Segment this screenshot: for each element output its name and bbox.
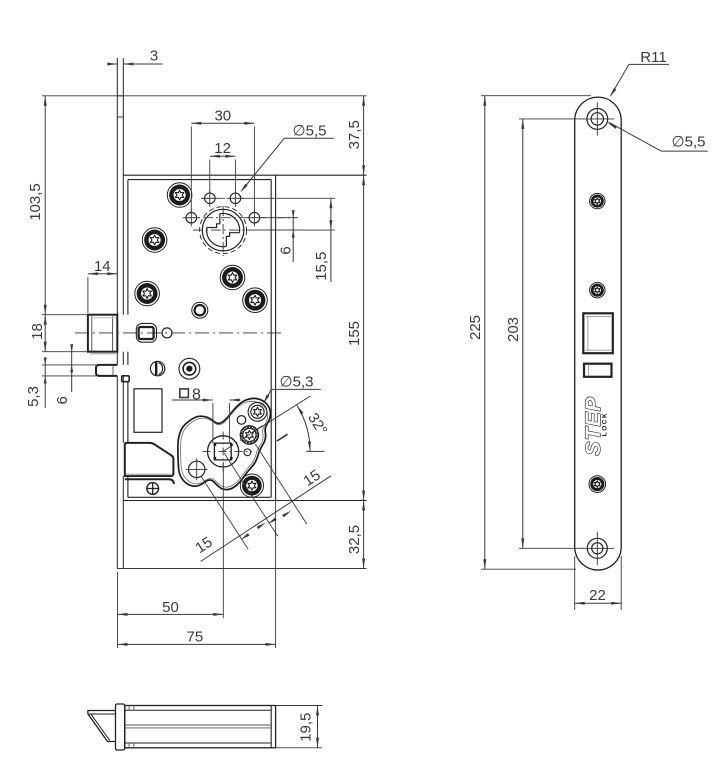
svg-text:14: 14	[94, 258, 111, 275]
svg-text:6: 6	[278, 246, 295, 254]
svg-text:225: 225	[467, 315, 484, 340]
svg-text:30: 30	[214, 108, 231, 125]
svg-text:∅5,3: ∅5,3	[280, 373, 314, 390]
svg-text:8: 8	[192, 387, 201, 404]
svg-text:6: 6	[54, 396, 71, 404]
svg-text:∅5,5: ∅5,5	[672, 134, 706, 151]
svg-text:203: 203	[505, 317, 522, 342]
svg-text:∅5,5: ∅5,5	[293, 122, 327, 139]
svg-text:3: 3	[150, 48, 158, 65]
svg-text:37,5: 37,5	[346, 120, 363, 149]
svg-text:22: 22	[589, 587, 606, 604]
svg-text:103,5: 103,5	[27, 183, 44, 221]
svg-text:5,3: 5,3	[25, 386, 42, 407]
svg-text:18: 18	[29, 323, 46, 340]
svg-text:50: 50	[162, 599, 179, 616]
svg-text:LOCK: LOCK	[602, 412, 609, 437]
svg-text:19,5: 19,5	[298, 713, 315, 742]
svg-text:155: 155	[346, 321, 363, 346]
svg-text:15,5: 15,5	[313, 252, 330, 281]
svg-text:32,5: 32,5	[346, 525, 363, 554]
svg-text:75: 75	[187, 629, 204, 646]
svg-text:12: 12	[214, 140, 231, 157]
svg-text:R11: R11	[640, 49, 666, 66]
